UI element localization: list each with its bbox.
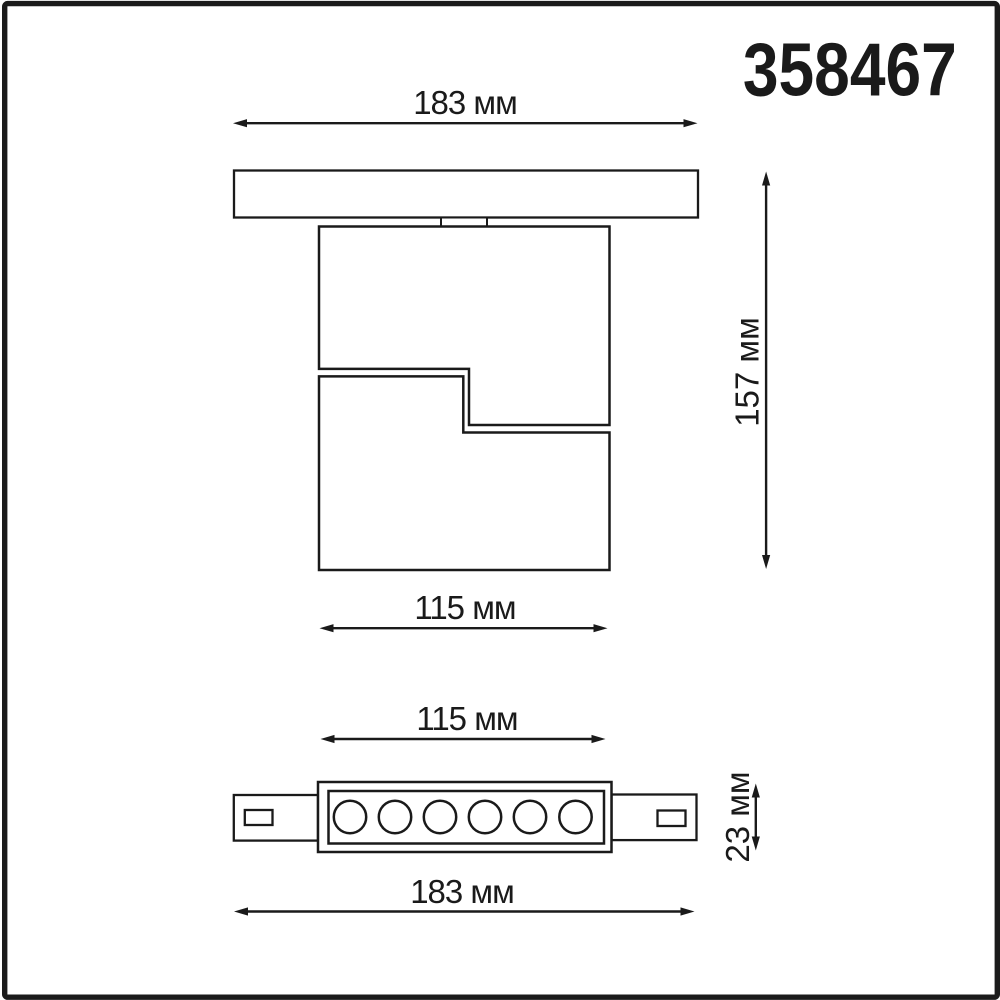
svg-text:183 мм: 183 мм — [413, 84, 517, 121]
svg-text:358467: 358467 — [743, 28, 957, 112]
svg-text:157 мм: 157 мм — [729, 317, 766, 427]
svg-text:115 мм: 115 мм — [416, 700, 517, 737]
svg-text:183 мм: 183 мм — [410, 873, 514, 910]
svg-text:23 мм: 23 мм — [719, 771, 756, 862]
svg-text:115 мм: 115 мм — [414, 589, 515, 626]
